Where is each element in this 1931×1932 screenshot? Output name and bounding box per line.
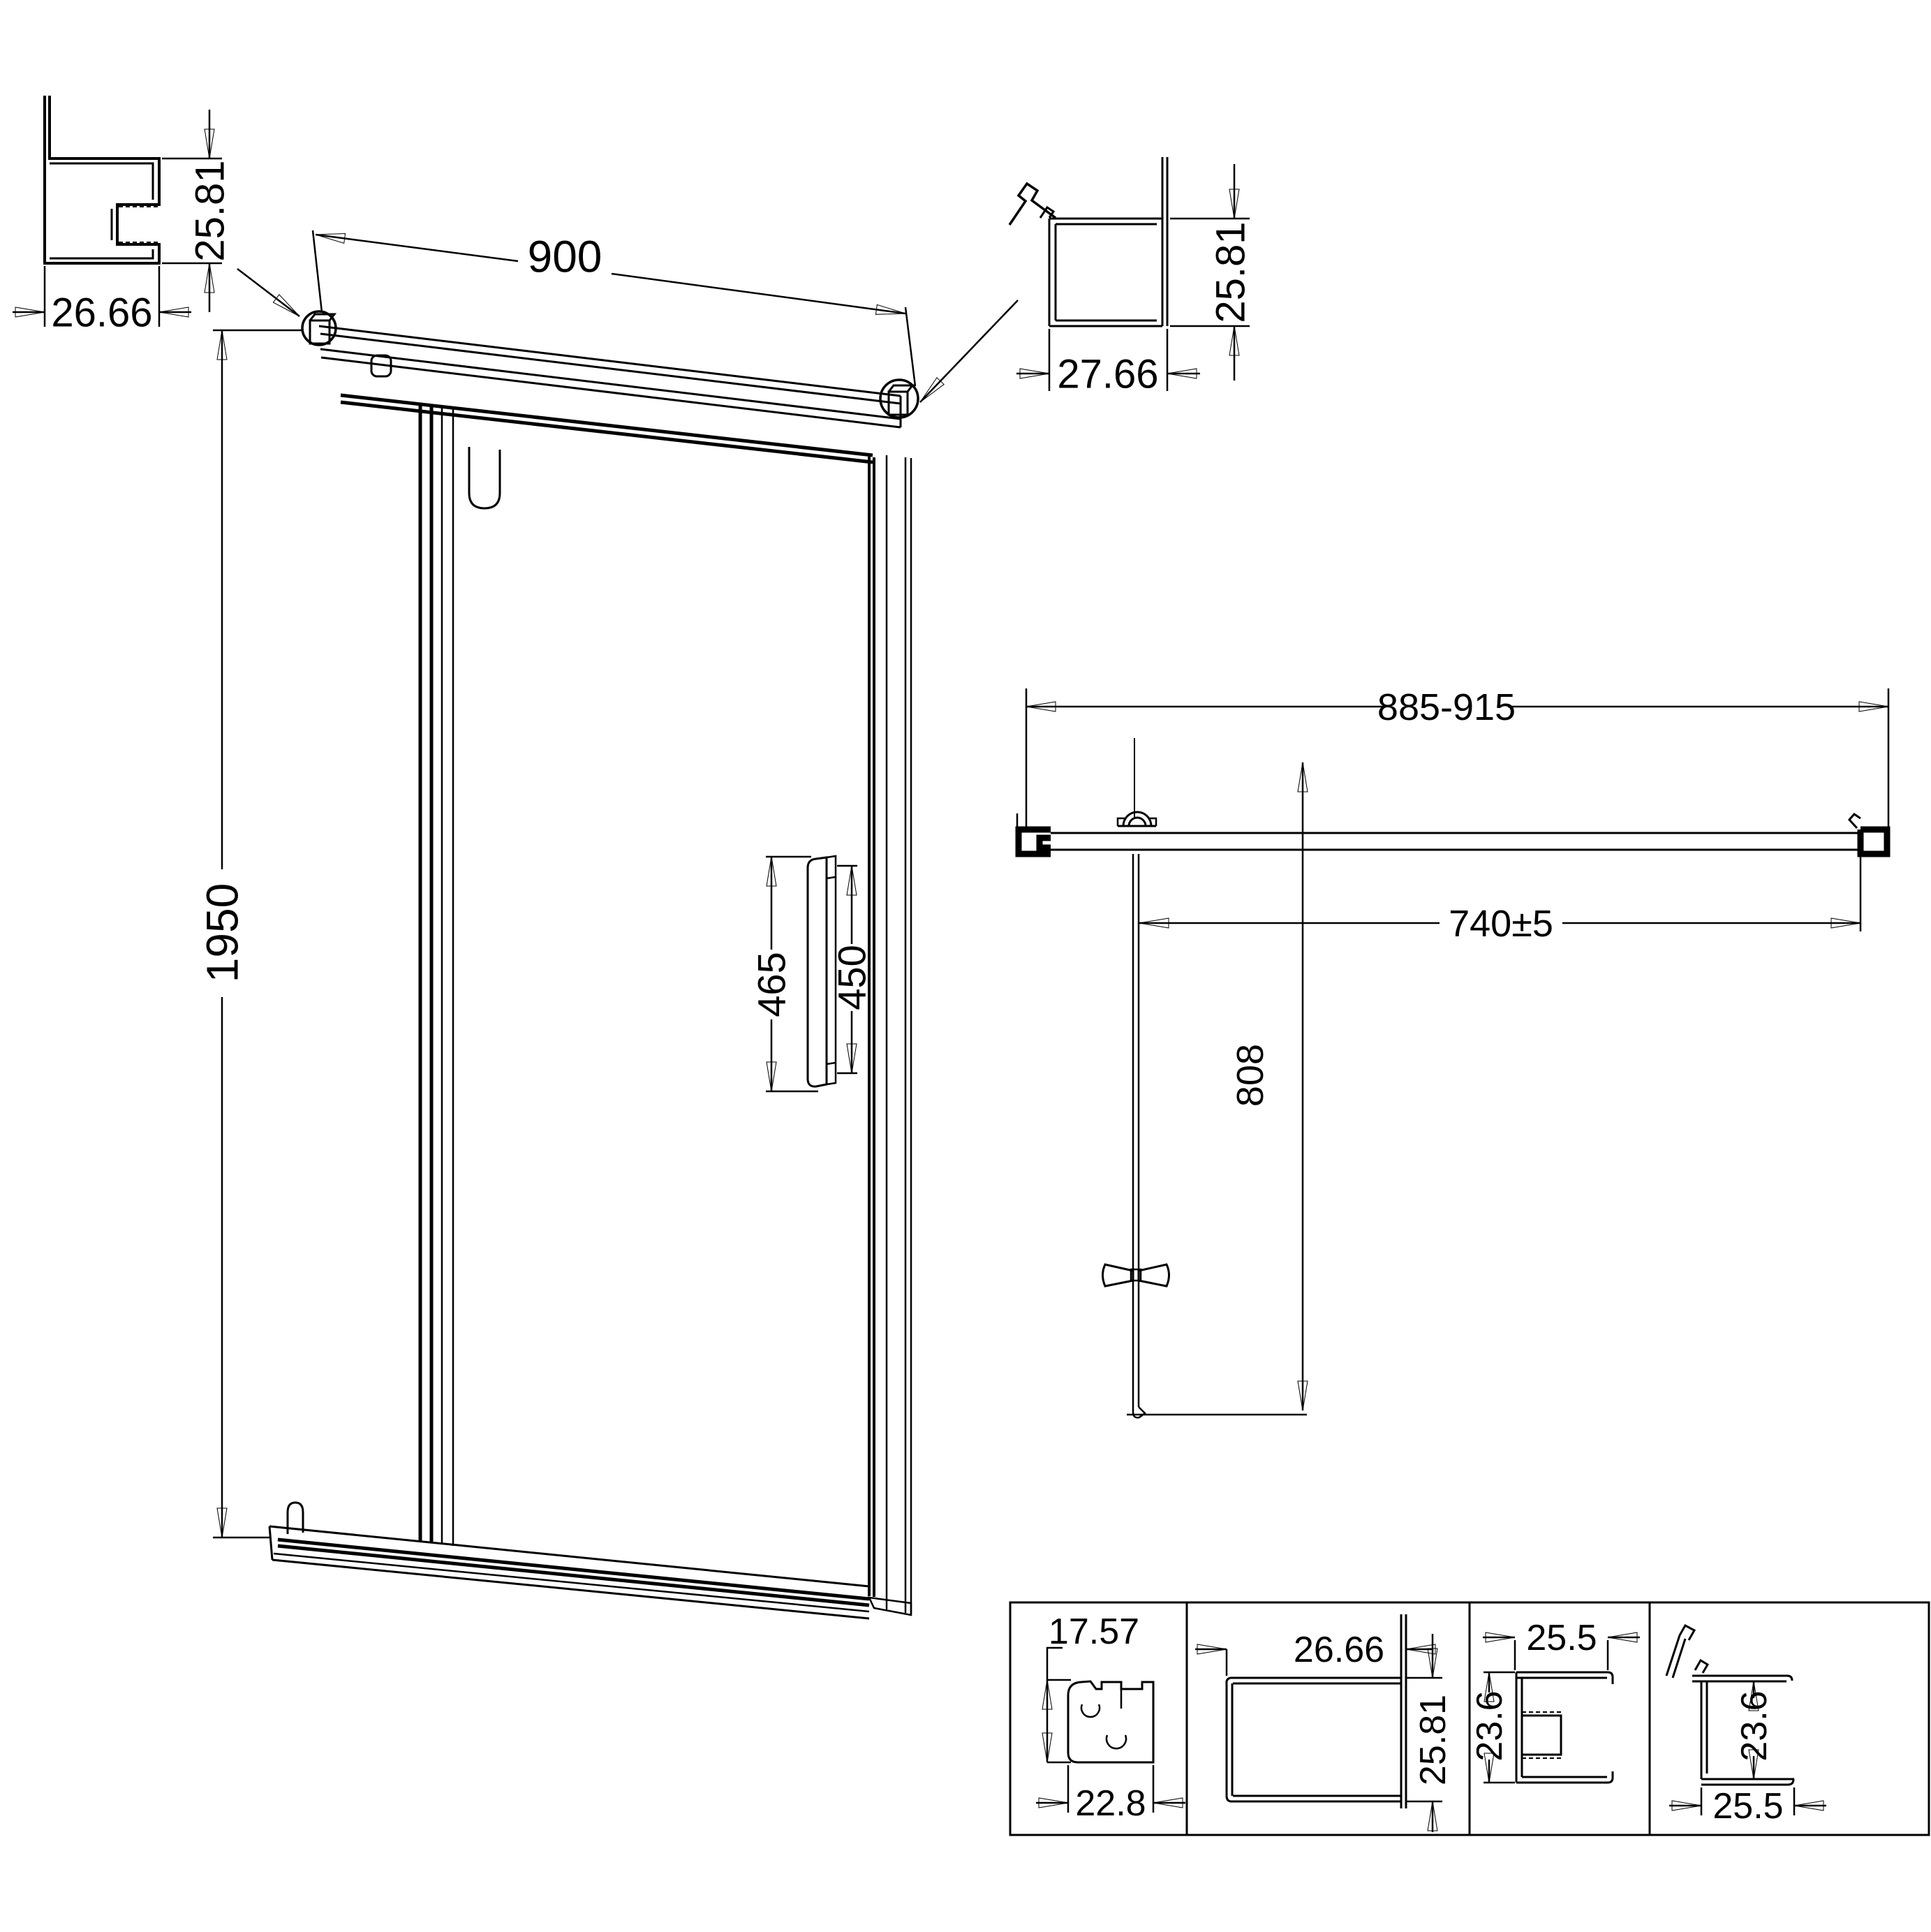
detail-box-hooked-jamb: 23.6 25.5 xyxy=(1666,1625,1826,1827)
leader-to-left-corner xyxy=(237,269,299,316)
dim-detail4-bottom: 25.5 xyxy=(1669,1786,1826,1827)
dim-plan-leaf: 740±5 xyxy=(1139,857,1860,945)
svg-text:26.66: 26.66 xyxy=(1294,1630,1384,1670)
plan-right-hook xyxy=(1849,814,1860,828)
dim-profile-right-height: 25.81 xyxy=(1170,164,1253,381)
svg-text:25.5: 25.5 xyxy=(1712,1786,1783,1827)
plan-view: 885-915 740±5 808 xyxy=(1017,686,1888,1417)
dim-detail4-side: 23.6 xyxy=(1734,1681,1775,1779)
profile-glass-flange xyxy=(1162,157,1167,326)
dim-profile-right-width: 27.66 xyxy=(1016,329,1200,397)
profile-outline xyxy=(45,96,159,263)
top-pivot-pin xyxy=(469,447,500,508)
dim-text-handle-outer: 465 xyxy=(750,952,794,1017)
top-rail xyxy=(319,326,901,462)
glazing-channel-shape xyxy=(1516,1672,1613,1783)
dim-profile-left-width: 26.66 xyxy=(13,266,191,335)
dim-text-plan-swing: 808 xyxy=(1229,1044,1271,1107)
closing-side-stile xyxy=(869,455,911,1615)
dim-text-profile-left-width: 26.66 xyxy=(51,290,152,335)
detail-box-frame-profile: 17.57 22.8 xyxy=(1036,1612,1185,1824)
dim-plan-swing: 808 xyxy=(1127,762,1307,1415)
dim-text-profile-right-width: 27.66 xyxy=(1057,351,1158,397)
svg-text:25.5: 25.5 xyxy=(1526,1618,1597,1658)
dim-detail2-side: 25.81 xyxy=(1406,1634,1453,1832)
bottom-rail xyxy=(269,1526,869,1618)
dim-text-detail1-top: 17.57 xyxy=(1049,1612,1139,1652)
svg-text:23.6: 23.6 xyxy=(1734,1690,1775,1761)
profile-channel xyxy=(1049,219,1162,326)
dim-door-width: 900 xyxy=(313,230,915,386)
shower-door-technical-drawing: 25.81 26.66 25.81 27.66 xyxy=(0,0,1931,1932)
dim-text-plan-overall: 885-915 xyxy=(1377,686,1516,728)
dim-text-profile-right-height: 25.81 xyxy=(1208,221,1253,323)
dim-detail2-top: 26.66 xyxy=(1195,1630,1433,1676)
frame-profile-shape xyxy=(1068,1681,1153,1762)
wall-profile-detail-left: 25.81 26.66 xyxy=(13,96,299,335)
plan-wall-channel-left xyxy=(1017,813,1051,854)
plan-handle-bowtie xyxy=(1103,1264,1169,1286)
dim-text-plan-leaf: 740±5 xyxy=(1449,903,1553,945)
detail-box-wall-channel: 26.66 25.81 xyxy=(1195,1614,1453,1832)
plan-door-bar xyxy=(1051,833,1860,850)
detail-box-glazing-channel: 25.5 23.6 xyxy=(1470,1618,1640,1783)
leader-to-right-corner xyxy=(920,300,1018,402)
profile-detail-strip: 17.57 22.8 26.66 xyxy=(1010,1602,1929,1835)
svg-text:23.6: 23.6 xyxy=(1470,1690,1510,1761)
svg-text:25.81: 25.81 xyxy=(1413,1695,1453,1785)
dim-profile-left-height: 25.81 xyxy=(162,110,232,312)
hinge-side-jamb xyxy=(420,404,453,1546)
glazing-channel-serration xyxy=(1522,1712,1561,1758)
svg-text:22.8: 22.8 xyxy=(1075,1783,1146,1824)
profile-serration xyxy=(119,207,158,242)
dim-text-handle-inner: 450 xyxy=(830,945,874,1010)
dim-text-profile-left-height: 25.81 xyxy=(187,160,232,261)
dim-detail3-side: 23.6 xyxy=(1470,1672,1515,1783)
dim-plan-overall: 885-915 xyxy=(1026,686,1888,829)
dim-detail1-bottom: 22.8 xyxy=(1036,1765,1185,1824)
door-elevation: 900 1950 465 450 xyxy=(197,230,918,1618)
dim-door-height: 1950 xyxy=(197,330,302,1538)
bottom-seal xyxy=(278,1540,869,1605)
plan-door-tip xyxy=(1133,1405,1145,1417)
plan-open-door xyxy=(1103,854,1169,1417)
frame-profile-screwports xyxy=(1081,1689,1126,1748)
hooked-jamb-shape xyxy=(1666,1625,1794,1785)
dim-text-door-height: 1950 xyxy=(197,883,247,982)
wall-profile-detail-right: 25.81 27.66 xyxy=(920,157,1253,402)
dim-detail3-top: 25.5 xyxy=(1483,1618,1640,1670)
drawing-sheet: 25.81 26.66 25.81 27.66 xyxy=(0,0,1931,1932)
plan-pivot-hinge xyxy=(1118,738,1156,826)
dim-text-door-width: 900 xyxy=(528,231,602,281)
